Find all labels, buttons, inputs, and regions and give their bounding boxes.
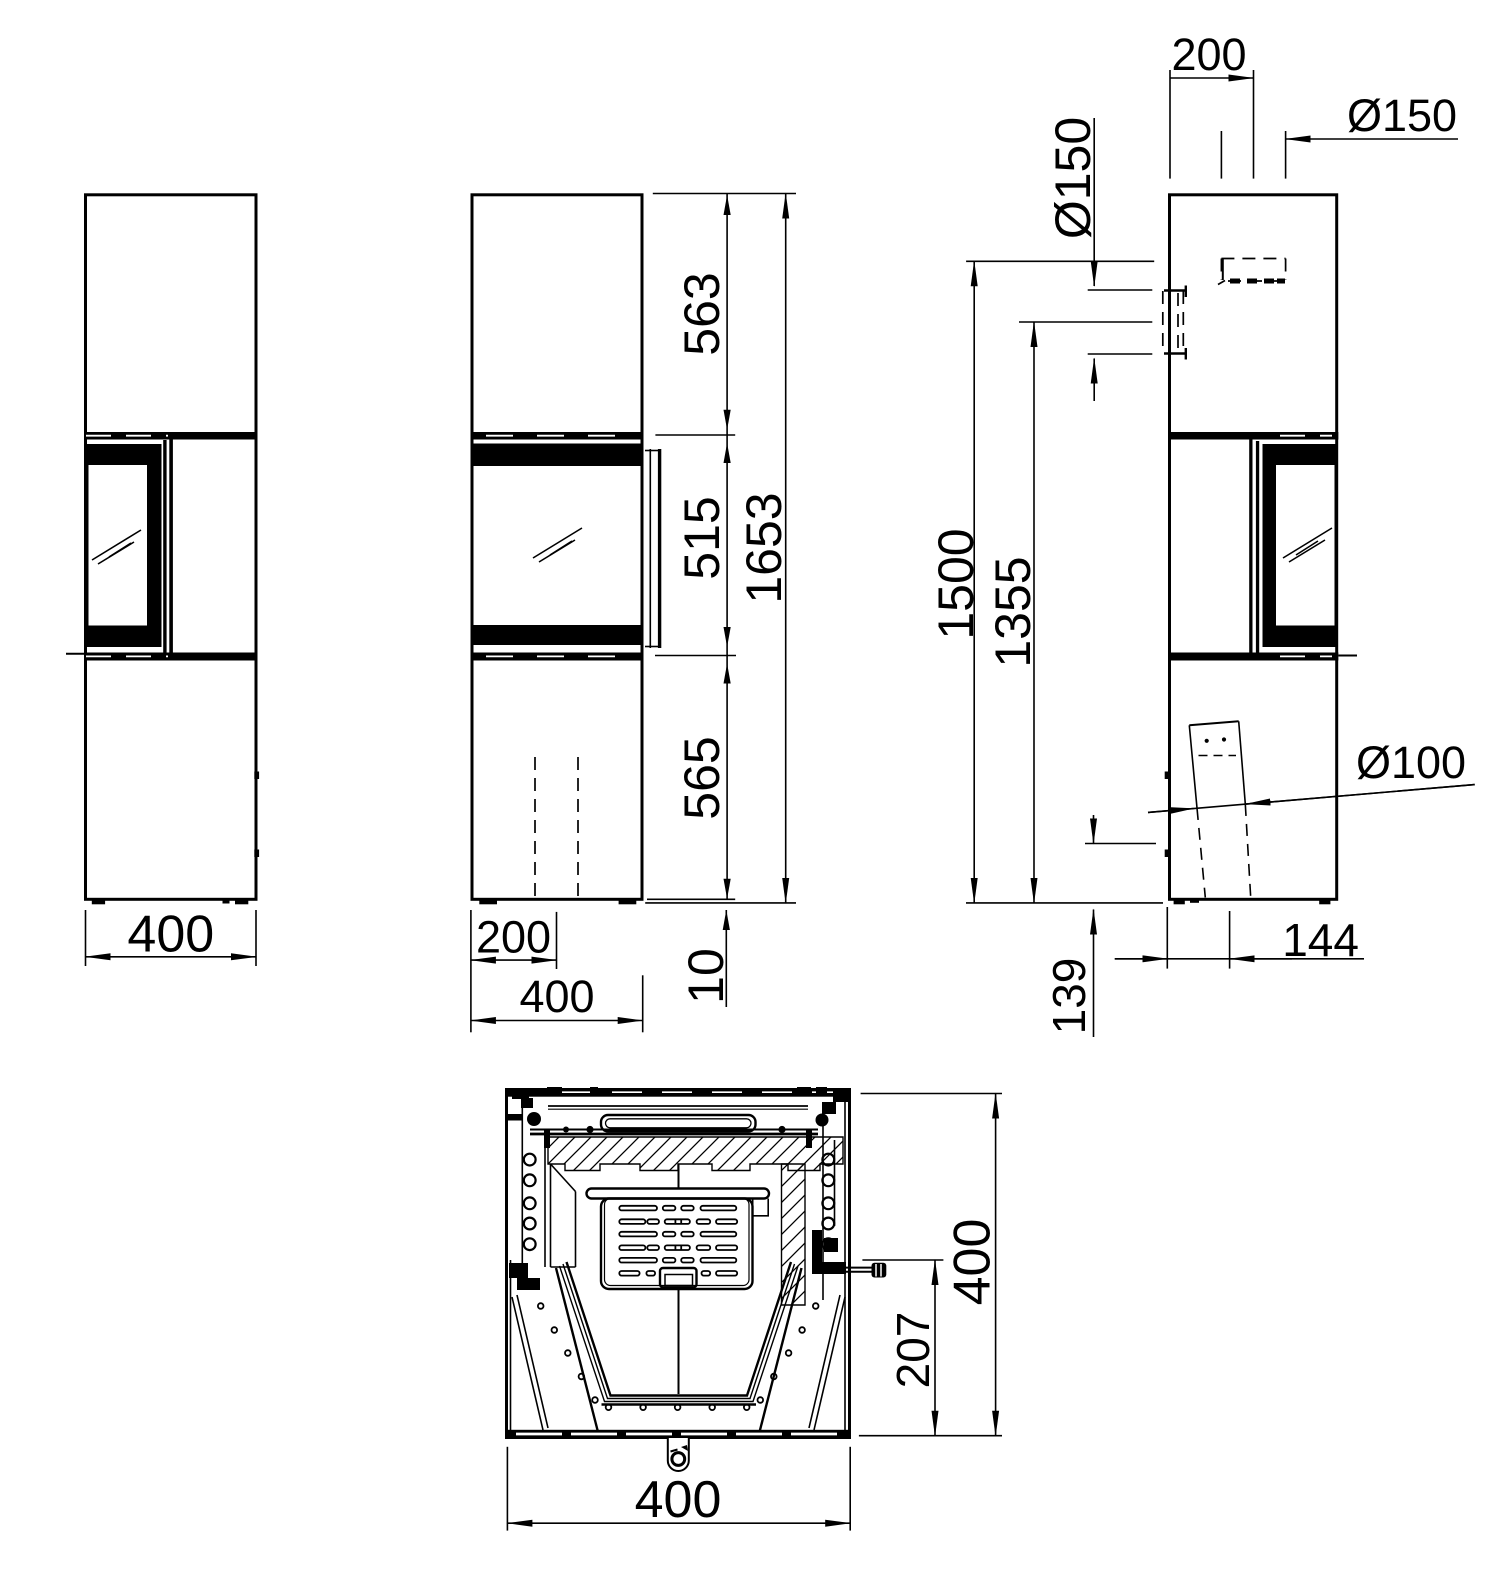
svg-text:515: 515 <box>674 496 730 579</box>
svg-text:400: 400 <box>127 906 214 964</box>
svg-text:200: 200 <box>476 912 551 963</box>
svg-text:563: 563 <box>674 272 730 355</box>
svg-text:1355: 1355 <box>985 556 1041 667</box>
svg-text:1653: 1653 <box>736 492 792 603</box>
svg-text:400: 400 <box>635 1471 722 1529</box>
svg-text:144: 144 <box>1282 914 1359 966</box>
svg-text:400: 400 <box>944 1219 1002 1306</box>
svg-text:200: 200 <box>1171 29 1246 80</box>
svg-text:565: 565 <box>674 736 730 819</box>
svg-text:207: 207 <box>887 1312 939 1389</box>
svg-text:10: 10 <box>678 948 734 1004</box>
svg-text:Ø150: Ø150 <box>1045 117 1101 239</box>
svg-text:1500: 1500 <box>928 528 984 639</box>
svg-text:139: 139 <box>1043 958 1095 1035</box>
svg-text:Ø100: Ø100 <box>1356 737 1466 788</box>
svg-text:400: 400 <box>519 971 594 1022</box>
svg-text:Ø150: Ø150 <box>1347 90 1457 141</box>
